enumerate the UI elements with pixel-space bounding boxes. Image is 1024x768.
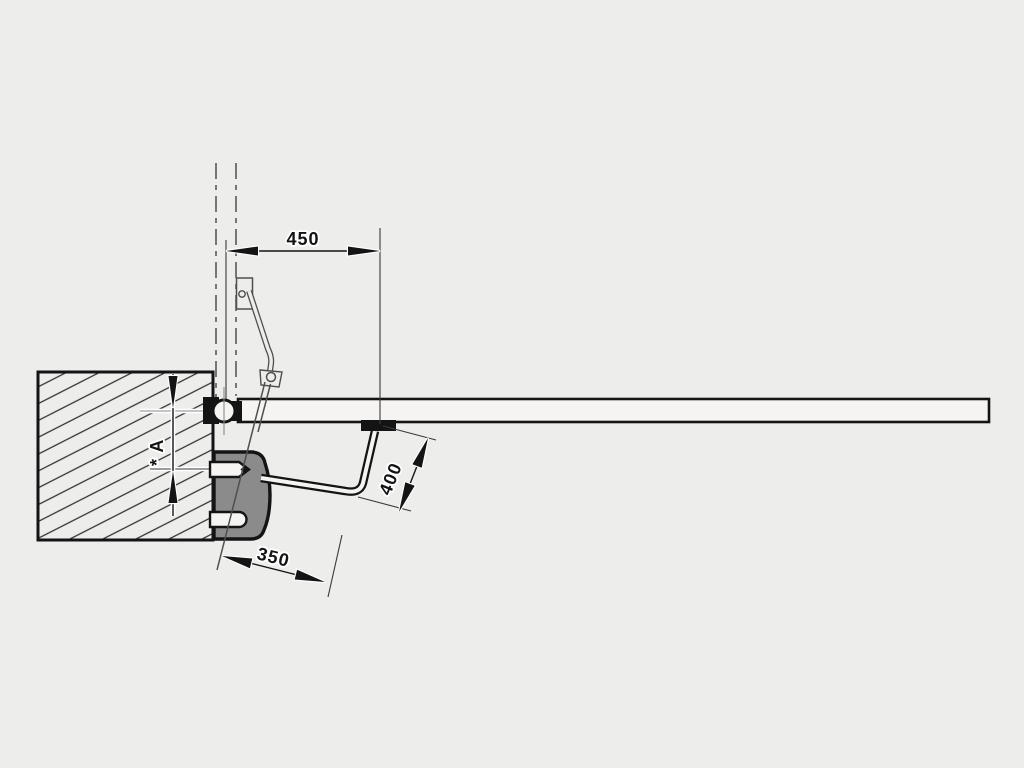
dim400-label: 400	[375, 460, 406, 498]
open-arm-elbow-pin	[267, 373, 276, 382]
diagram-canvas: 450 400 350 * A	[0, 0, 1024, 768]
gate-operator-installation-diagram: 450 400 350 * A	[0, 0, 1024, 768]
dim350-label: 350	[255, 543, 292, 570]
dimension-350: 350	[222, 535, 342, 597]
dim400-arrow-bottom	[399, 482, 415, 512]
dim400-arrow-top	[412, 438, 428, 468]
wall-section	[38, 372, 213, 540]
dim450-label: 450	[286, 229, 319, 249]
dim450-arrow-left	[226, 247, 258, 256]
gate-attachment-bracket	[361, 420, 396, 431]
dim350-extension-right	[328, 535, 342, 597]
dim450-arrow-right	[348, 247, 380, 256]
gate-bar	[238, 399, 989, 422]
dim350-arrow-right	[295, 570, 325, 582]
operator-mounting-plate	[210, 452, 270, 539]
wall-hatching	[38, 372, 213, 540]
gate-leaf-closed	[238, 399, 989, 422]
dim350-arrow-left	[222, 556, 252, 568]
operator-arm-closed-position	[261, 420, 396, 492]
dimension-450: 450	[226, 228, 380, 424]
open-arm-bracket-pin	[239, 291, 245, 297]
dimA-label: * A	[147, 439, 167, 466]
